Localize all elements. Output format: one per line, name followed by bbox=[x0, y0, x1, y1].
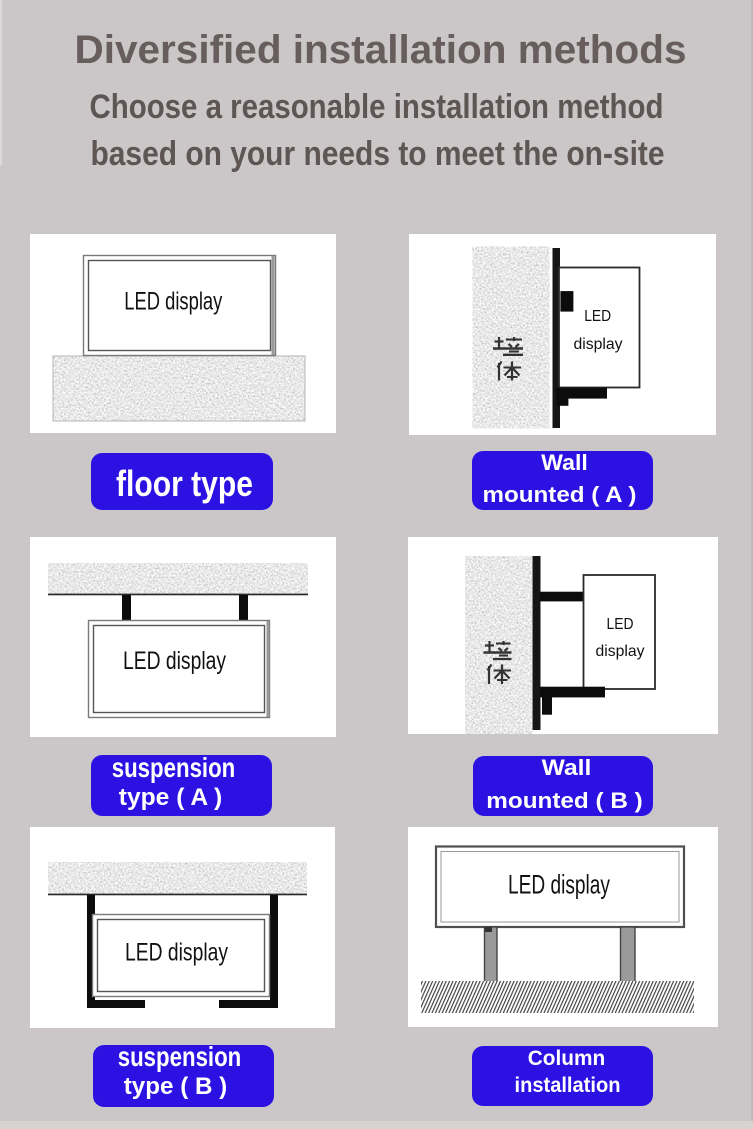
svg-text:LED: LED bbox=[584, 308, 611, 325]
svg-text:LED display: LED display bbox=[124, 288, 222, 316]
svg-text:LED display: LED display bbox=[508, 870, 610, 900]
svg-text:display: display bbox=[574, 336, 623, 353]
svg-text:display: display bbox=[596, 643, 645, 660]
svg-text:LED display: LED display bbox=[123, 647, 226, 675]
svg-text:LED display: LED display bbox=[125, 939, 228, 967]
svg-text:LED: LED bbox=[607, 616, 634, 633]
